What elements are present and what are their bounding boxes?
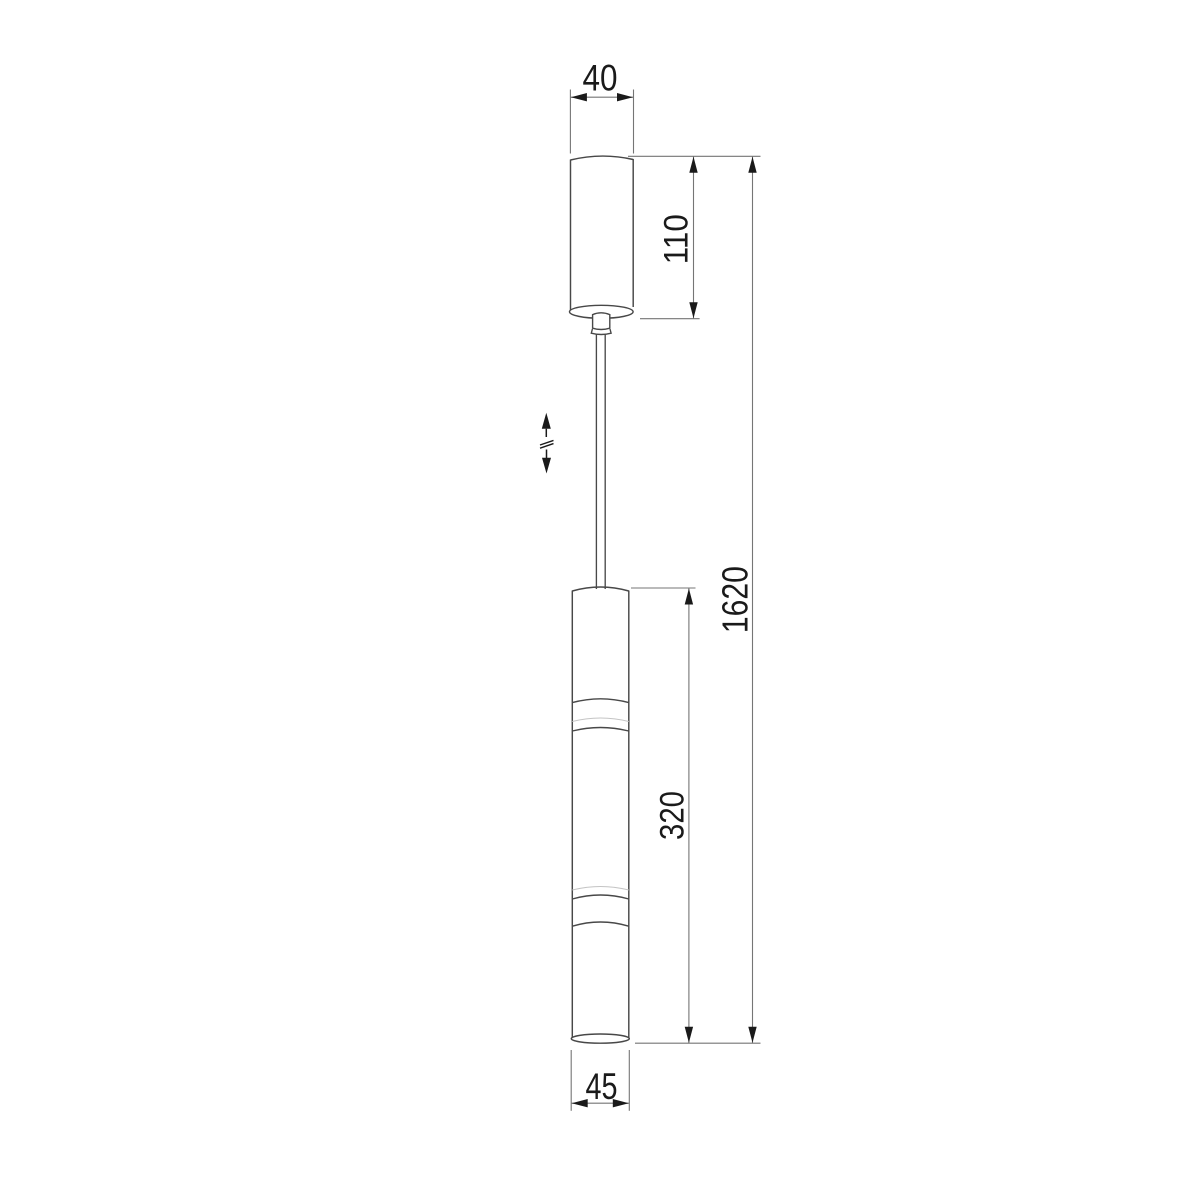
svg-text:45: 45 — [586, 1066, 618, 1107]
svg-text:1620: 1620 — [715, 566, 756, 633]
svg-text:110: 110 — [658, 214, 696, 264]
svg-text:320: 320 — [654, 791, 692, 840]
svg-text:40: 40 — [583, 58, 618, 99]
